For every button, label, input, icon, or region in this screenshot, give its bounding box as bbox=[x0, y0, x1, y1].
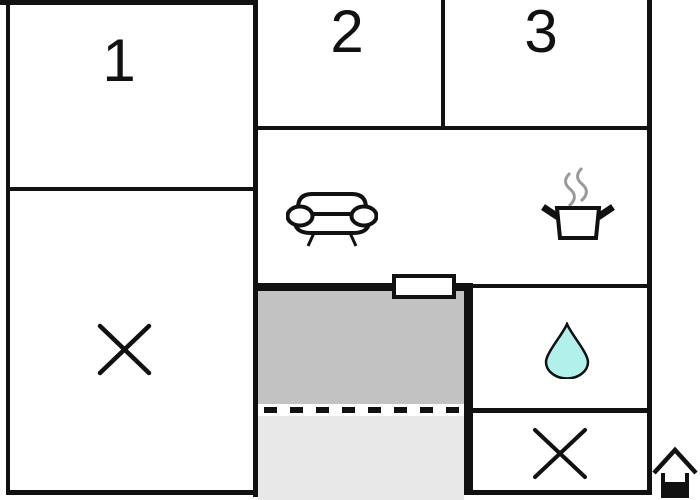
dashed-line bbox=[264, 407, 460, 413]
x-mark-icon bbox=[531, 426, 589, 481]
wall-under-rooms-2-3 bbox=[253, 126, 652, 130]
terrace-dashed-line bbox=[258, 404, 464, 416]
room-1-label: 1 bbox=[102, 31, 135, 91]
sofa-icon bbox=[286, 186, 378, 248]
water-drop-icon bbox=[543, 322, 591, 379]
wall-right bbox=[647, 0, 652, 495]
x-mark-icon bbox=[96, 322, 153, 377]
wall-bathroom-bottom bbox=[464, 408, 652, 413]
cooking-pot-icon bbox=[532, 160, 616, 246]
wall-terrace-right-thick bbox=[464, 283, 473, 495]
house-icon bbox=[652, 446, 698, 500]
wall-room1-bottom bbox=[6, 187, 258, 191]
wall-kitchen-bathroom bbox=[473, 284, 652, 288]
terrace-lower bbox=[258, 416, 464, 500]
wall-room2-room3-divider bbox=[441, 0, 445, 130]
room-2-label: 2 bbox=[330, 2, 363, 62]
wall-top bbox=[0, 0, 258, 5]
steam-icon bbox=[566, 168, 587, 206]
wall-left bbox=[6, 0, 10, 495]
floor-plan: 1 2 3 bbox=[0, 0, 700, 500]
terrace-upper bbox=[258, 291, 464, 404]
wall-center-vertical bbox=[253, 0, 258, 497]
room-3-label: 3 bbox=[524, 2, 557, 62]
wall-right-room-bottom bbox=[464, 490, 652, 495]
wall-left-room-bottom bbox=[6, 490, 258, 495]
window-marker bbox=[392, 274, 456, 299]
